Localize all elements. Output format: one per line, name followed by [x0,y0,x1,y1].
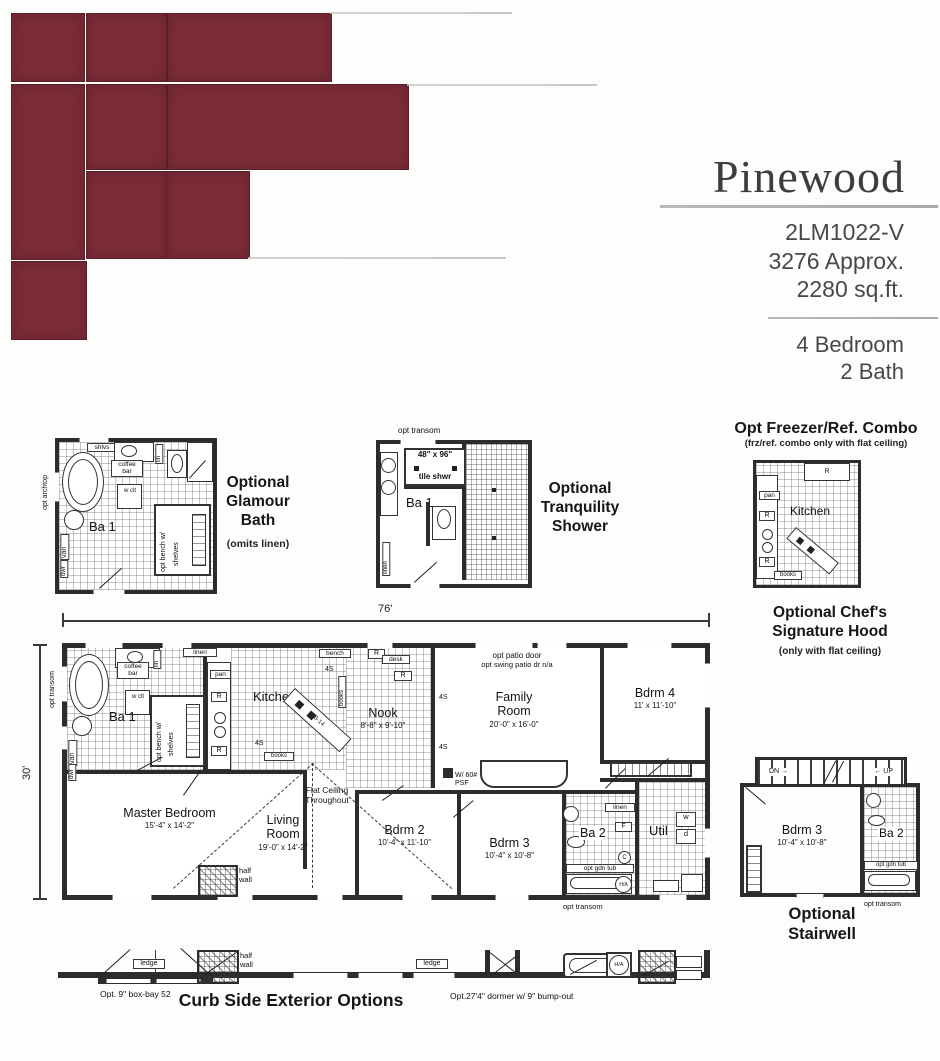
wall [426,502,430,546]
psf-note: W/ 60# PSF [455,772,481,788]
room-label-kitchen: Kitchen [790,505,830,519]
patio-swing-label: opt swing patio dr n/a [452,661,582,670]
island-sink [294,700,304,710]
books-label: books [338,676,346,708]
maroon-block [11,261,87,340]
tranquility-shower-plan: 48" x 96" tile shwr Ba 1 linen [376,440,532,588]
closet [746,845,762,893]
window [705,663,710,708]
vanity-label: van [68,740,77,766]
window [112,895,152,900]
tub-basin [75,661,103,709]
freezer-combo-plan: R pan R R Kitchen books [753,460,861,588]
sink [381,480,396,495]
square-footage: 2280 sq.ft. [768,275,904,304]
wall-end [704,950,710,978]
main-floor-plan: coffee bar lin linen w clt Ba 1 van dwr … [62,643,710,900]
bed-bath-specs: 4 Bedroom 2 Bath [796,331,904,386]
chase-letter: C [622,855,626,861]
door-swing [414,562,437,583]
ledge-label: ledge [416,959,448,969]
dimension-tick [708,613,710,627]
refrigerator-label: R [211,746,227,756]
shelf-unit [192,514,206,566]
drawer-label: dwr [68,764,76,781]
refrigerator-label: R [211,692,227,702]
bdrm2-dim: 10'-4" x 11'-10" [372,838,437,847]
bench-label: opt bench w/ [156,702,163,762]
garden-tub [864,871,916,891]
opt-transom-label: opt transom [563,903,603,912]
dimension-tick [33,898,47,900]
oven [214,726,226,738]
opt-transom-label: opt transom [398,426,440,435]
nook-dim: 8'-8" x 9'-10" [352,721,414,730]
sink [866,793,881,808]
maroon-block [11,84,85,260]
glamour-caption: Optional Glamour Bath [222,474,294,531]
half-wall-label: half wall [239,867,259,884]
window [400,440,436,444]
stairs-down-label: DN → [768,768,789,776]
books-label: books [264,752,294,761]
pantry-label: pan [210,670,231,679]
room-label-living: Living Room 19'-0" x 14'-2" [254,813,312,852]
glamour-bath-plan: shlvs coffee bar lin w clt Ba 1 van dwr … [55,438,217,594]
bdrm4-name: Bdrm 4 [612,686,698,700]
oven [214,712,226,724]
decorative-line [248,257,506,259]
maroon-block [167,13,332,82]
title-divider [660,205,938,208]
bench-label: opt bench w/ [160,512,167,572]
tile-shower-callout: 48" x 96" tile shwr [404,448,466,486]
sink [64,510,84,530]
window [796,894,824,898]
stairwell-caption: Optional Stairwell [772,904,872,944]
island-sink [796,537,804,545]
support-post [443,768,453,778]
room-label-master: Master Bedroom 15'-4" x 14'-2" [122,806,217,831]
linen-label: linen [183,648,217,657]
drawer-label: dwr [60,560,68,578]
wall [600,648,604,760]
glamour-note: (omits linen) [218,538,298,550]
water-closet-label: w clt [130,694,146,701]
curb-side-title: Curb Side Exterior Options [156,990,426,1011]
coffee-bar-label: coffee bar [117,662,149,679]
opt-archtop-label: opt archtop [42,450,49,510]
approx-area: 3276 Approx. [768,247,904,276]
bdrm3-name: Bdrm 3 [477,836,542,850]
wall [740,783,744,897]
window [317,895,343,900]
media-center [480,760,568,788]
dormer-post [485,950,490,978]
maroon-block [166,171,250,259]
wall [635,782,639,895]
dimension-tick [33,644,47,646]
opt-gdn-tub-label: opt gdn tub [566,864,634,873]
dormer-brace [489,952,515,972]
shelf-unit [186,704,200,758]
entry-step [681,874,703,892]
shelves-label: shlvs [87,443,117,452]
heat-air-label: H/A [614,962,623,968]
window-4s-label: 4S [255,740,264,748]
heat-air-unit: H/A [609,955,629,975]
oven [762,529,773,540]
dormer-post [515,950,520,978]
room-label-ba2: Ba 2 [878,827,905,841]
water-closet-label: w clt [122,488,138,495]
shower-head [452,466,457,471]
window [659,895,687,900]
window-4s-label: 4S [439,694,448,702]
entry-step [676,970,702,980]
room-label-bdrm4: Bdrm 4 11' x 11'-10" [612,686,698,711]
curb-side-strip: ledge Opt. 9" box-bay 52 half wall Curb … [58,948,710,992]
bdrm3-name: Bdrm 3 [758,823,846,837]
window-4s-label: 4S [439,744,448,752]
furnace-label: F [615,822,632,832]
living-name: Living Room [254,813,312,842]
staircase: DN → ← UP [755,757,907,787]
decorative-line [407,84,597,86]
window [413,973,455,978]
room-label-ba1: Ba 1 [109,710,136,725]
dimension-line-height [39,644,41,900]
bdrm3-dim: 10'-4" x 10'-8" [758,838,846,847]
spec-divider [768,317,938,319]
door-opening [93,590,125,594]
desk-label: desk [382,655,410,664]
linen-closet-label: lin [153,650,161,669]
maroon-block [86,84,167,170]
living-dim: 19'-0" x 14'-2" [254,843,312,852]
bench-closet: opt bench w/ shelves [154,504,211,576]
family-name: Family Room [482,690,546,719]
bedroom-count: 4 Bedroom [796,331,904,358]
ridge-line [312,763,313,888]
page-title: Pinewood [713,150,905,203]
ledge-label: ledge [133,959,165,969]
window [367,643,393,648]
sink [381,458,396,473]
back-door [705,828,710,858]
maroon-block [167,84,409,170]
maroon-block [86,171,167,259]
window [106,979,151,983]
dimension-tick [62,613,64,627]
brochure-page: Pinewood 2LM1022-V 3276 Approx. 2280 sq.… [0,0,940,1061]
toilet [437,509,451,529]
chase-label: C [618,851,631,864]
shower-head [414,466,419,471]
room-label-bdrm2: Bdrm 2 10'-4" x 11'-10" [372,823,437,848]
tub-basin [868,874,910,886]
room-label-family: Family Room 20'-0" x 16'-0" [482,690,546,729]
coffee-bar-label: coffee bar [111,460,143,477]
dimension-height-label: 30' [22,756,34,780]
room-label-ba2: Ba 2 [579,826,607,840]
bdrm3-dim: 10'-4" x 10'-8" [477,851,542,860]
door-swing [745,787,766,804]
toilet [171,454,183,473]
entry-step [676,956,702,968]
room-label-ba1: Ba 1 [89,520,116,535]
wall [740,893,920,897]
window [402,895,432,900]
heat-air-label: H/A [619,882,627,888]
refrigerator-label: R [759,511,775,521]
heat-air-unit: H/A [615,876,632,893]
window [627,643,672,648]
shelves-label: shelves [173,516,180,566]
tranquility-caption: Optional Tranquility Shower [538,480,622,537]
books-label: books [774,571,802,580]
wall [355,790,639,794]
bench-closet: opt bench w/ shelves [150,695,205,767]
room-label-nook: Nook 8'-8" x 9'-10" [352,706,414,731]
shower-size-label: 48" x 96" [406,450,464,459]
nook-name: Nook [352,706,414,720]
tile-shower-floor [466,444,528,580]
sink [121,445,137,457]
linen-closet-label: lin [155,444,163,464]
oven [762,542,773,553]
pantry-label: pan [759,491,780,500]
window [55,472,59,502]
room-label-bdrm3: Bdrm 3 10'-4" x 10'-8" [477,836,542,861]
window [79,438,109,442]
window-4s-label: 4S [325,666,334,674]
window [62,726,67,750]
dryer-label: d [676,829,696,844]
shower-type-label: tile shwr [406,472,464,481]
maroon-block [11,13,85,82]
door-swing [183,770,201,795]
sink [72,716,92,736]
freezer-subtitle: (frz/ref. combo only with flat ceiling) [716,438,936,449]
bench-label: bench [319,649,351,658]
refrigerator-label: R [394,671,412,681]
dormer-caption: Opt.27'4" dormer w/ 9" bump-out [450,992,573,1002]
entry-step [653,880,679,892]
master-dim: 15'-4" x 14'-2" [122,821,217,830]
dimension-line-width [62,620,710,622]
window [293,973,348,978]
decorative-line [330,12,512,14]
wall [404,486,466,489]
window [62,666,67,702]
bdrm2-name: Bdrm 2 [372,823,437,837]
wall [916,783,920,897]
shelves-label: shelves [168,706,175,756]
patio-door [475,643,533,648]
hood-caption: Optional Chef's Signature Hood [740,604,920,642]
linen-label: linen [605,803,635,812]
vanity-label: van [60,534,69,560]
toilet [868,815,885,826]
window [156,979,201,983]
drain [492,536,496,540]
window [358,973,403,978]
room-label-util: Util [649,824,668,839]
drain [492,488,496,492]
half-wall-stairs [198,865,238,897]
bdrm4-dim: 11' x 11'-10" [612,701,698,710]
refrigerator-label: R [824,468,829,475]
stairs-up-label: ← UP [873,768,894,776]
freezer-title: Opt Freezer/Ref. Combo [716,419,936,439]
stairwell-plan: DN → ← UP Bdrm 3 10'-4" x 10'-8" Ba 2 op… [740,757,920,907]
room-label-bdrm3-opt: Bdrm 3 10'-4" x 10'-8" [758,823,846,848]
linen-label: linen [382,542,390,576]
window [495,895,529,900]
window [537,643,567,648]
family-dim: 20'-0" x 16'-0" [482,720,546,729]
door-opening [410,584,440,588]
master-name: Master Bedroom [122,806,217,820]
dimension-width-label: 76' [378,603,392,615]
wall [67,770,307,774]
opt-gdn-tub-label: opt gdn tub [864,861,918,870]
model-specs: 2LM1022-V 3276 Approx. 2280 sq.ft. [768,218,904,304]
model-number: 2LM1022-V [768,218,904,247]
washer-label: w [676,812,696,827]
tub-basin [68,459,98,505]
opt-transom-label: opt transom [49,664,56,708]
refrigerator: R [804,463,850,481]
island-sink [807,546,815,554]
patio-door-label: opt patio door [457,651,577,660]
maroon-block [86,13,167,82]
sink [563,806,579,822]
wall [431,648,435,788]
refrigerator-label: R [759,557,775,567]
bath-count: 2 Bath [796,358,904,385]
half-wall-label: half wall [240,952,260,969]
hood-subtitle: (only with flat ceiling) [740,646,920,657]
